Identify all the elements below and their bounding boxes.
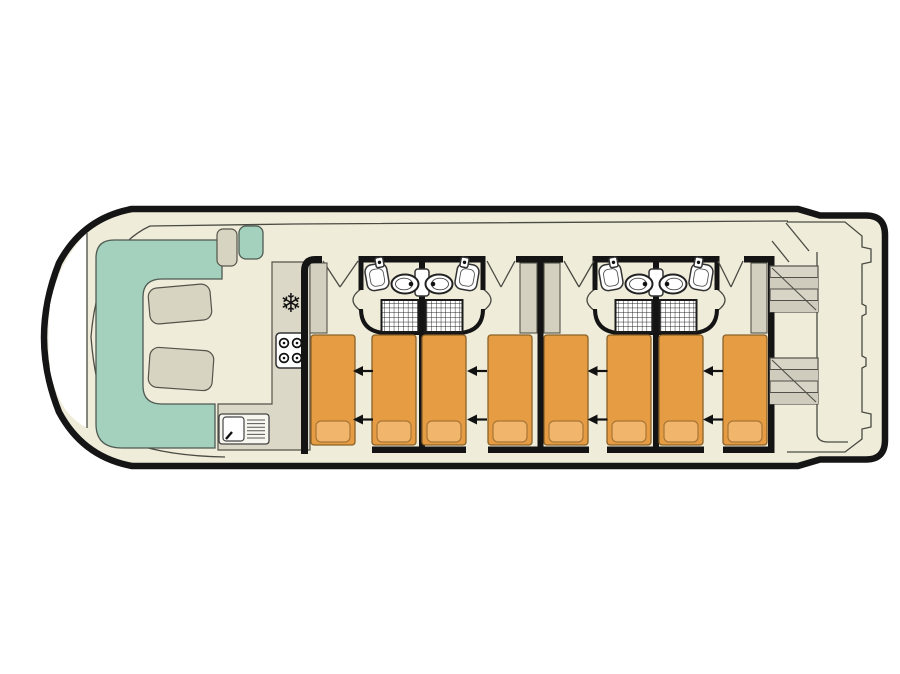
galley-sink-drainer-icon xyxy=(219,414,269,444)
bed-base-wall xyxy=(607,447,704,454)
deck-plan-canvas: ❄ xyxy=(0,0,900,674)
bed xyxy=(659,335,703,445)
saloon-table xyxy=(148,347,215,391)
bed-base-wall xyxy=(488,447,589,454)
cabin-divider-wall xyxy=(538,256,544,453)
bed xyxy=(422,335,466,445)
stairs xyxy=(770,358,818,404)
bed-base-wall xyxy=(723,447,774,454)
bed-base-wall xyxy=(372,447,466,454)
bed xyxy=(372,335,416,445)
bed xyxy=(607,335,651,445)
bed xyxy=(544,335,588,445)
helm-seat xyxy=(239,226,263,259)
wardrobe xyxy=(520,263,537,333)
deck-plan: ❄ xyxy=(0,0,900,674)
bed xyxy=(311,335,355,445)
wardrobe xyxy=(751,263,767,333)
wardrobe xyxy=(310,263,327,333)
bed xyxy=(488,335,532,445)
bed xyxy=(723,335,767,445)
stairs xyxy=(770,266,818,312)
wardrobe xyxy=(544,263,560,333)
helm-seat xyxy=(217,229,237,266)
freezer-icon: ❄ xyxy=(280,289,302,319)
hob-icon xyxy=(276,333,305,368)
saloon-table xyxy=(148,283,213,324)
